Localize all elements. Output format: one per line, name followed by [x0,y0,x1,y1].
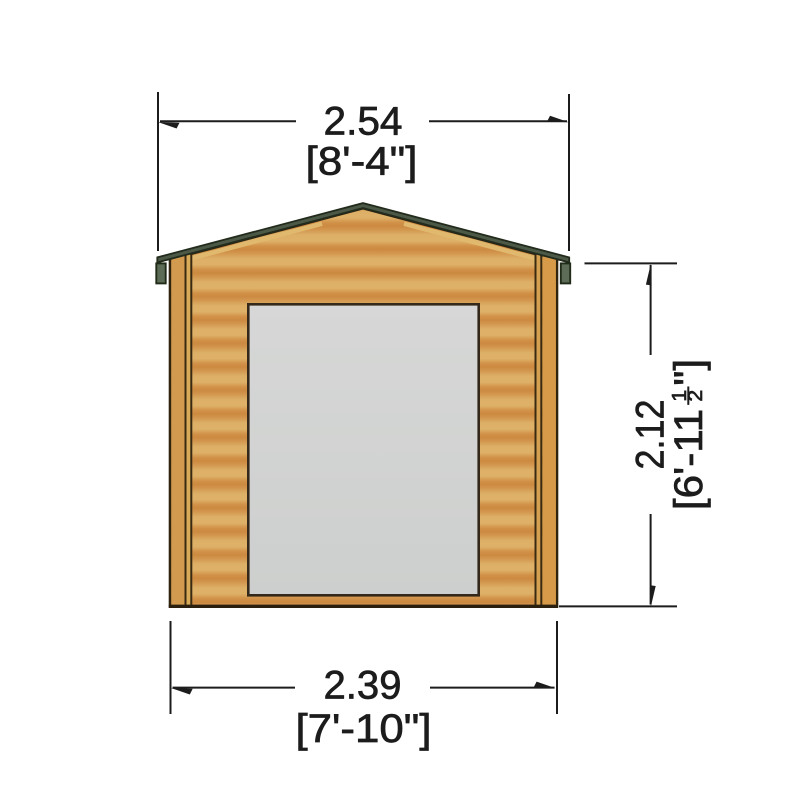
svg-text:[7'-10"]: [7'-10"] [296,707,432,751]
svg-text:[8'-4"]: [8'-4"] [306,140,418,184]
svg-text:2.54: 2.54 [324,100,403,144]
svg-text:2.39: 2.39 [324,663,402,707]
svg-text:[6'-11: [6'-11 [666,409,711,510]
svg-text:2: 2 [684,390,706,402]
svg-text:"]: "] [666,359,711,386]
